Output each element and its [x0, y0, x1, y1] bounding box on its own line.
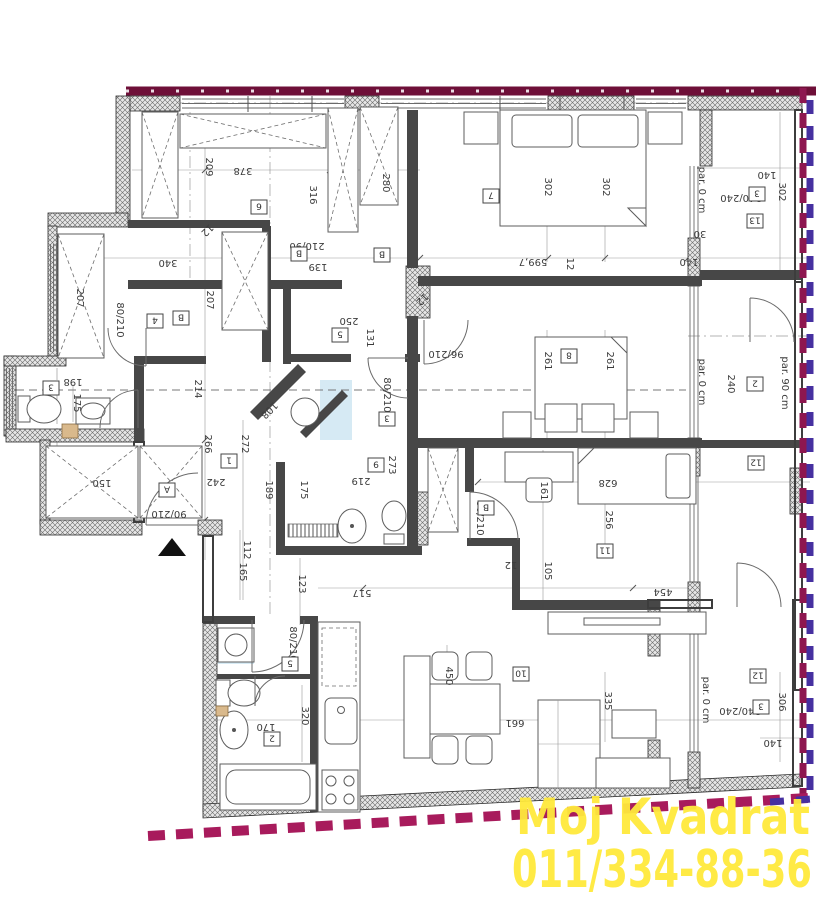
- dim-label: 189: [263, 480, 274, 499]
- room-number: 10: [515, 668, 527, 678]
- room-number-box: 2: [747, 377, 763, 391]
- dim-label: 123: [296, 574, 307, 593]
- dim-label: 207: [204, 290, 215, 309]
- room-number: 3: [48, 382, 54, 392]
- room-number-box: 3: [43, 381, 59, 395]
- room-number-box: 7: [483, 189, 499, 203]
- room-number-box: 10: [513, 667, 529, 681]
- dim-label: 175: [71, 393, 82, 412]
- dim-label: 161: [538, 481, 549, 500]
- room-number: 1: [226, 455, 232, 465]
- room-number: 5: [287, 658, 293, 668]
- dim-label: 302: [600, 177, 611, 196]
- dim-label: 112: [241, 540, 252, 559]
- room-number: 2: [269, 733, 275, 743]
- room-number: 2: [752, 378, 758, 388]
- dim-label: 302: [542, 177, 553, 196]
- dim-label: 628: [598, 477, 617, 488]
- floor-plan-page: { "title": "apartment-floor-plan", "wate…: [0, 0, 837, 900]
- room-number-box: 9: [368, 458, 384, 472]
- room-number: B: [178, 312, 184, 322]
- dim-label: 90/210: [151, 508, 186, 519]
- room-number: 8: [566, 350, 572, 360]
- room-number-box: 3: [379, 412, 395, 426]
- room-number: 6: [256, 201, 262, 211]
- dim-label: 170: [256, 721, 275, 732]
- dim-label: 302: [776, 182, 787, 201]
- dim-label: 219: [351, 475, 370, 486]
- dim-label: 280: [380, 173, 391, 192]
- room-number-box: B: [173, 311, 189, 325]
- dim-label: 316: [307, 185, 318, 204]
- room-number-box: 3: [749, 187, 765, 201]
- room-number: B: [296, 248, 302, 258]
- room-number-box: 6: [251, 200, 267, 214]
- dim-label: par. 0 cm: [696, 167, 707, 214]
- watermark: Moj Kvadrat 011/334-88-36: [512, 788, 812, 900]
- room-number: 3: [754, 188, 760, 198]
- dim-label: 131: [364, 328, 375, 347]
- room-number: 3: [384, 413, 390, 423]
- dim-label: 661: [505, 717, 524, 728]
- room-number-box: 13: [747, 214, 763, 228]
- dim-label: 140: [763, 737, 782, 748]
- dim-label: 198: [63, 376, 82, 387]
- dim-label: 175: [298, 480, 309, 499]
- room-number-box: A: [159, 483, 175, 497]
- dim-label: par. 0 cm: [696, 359, 707, 406]
- dim-label: 261: [604, 351, 615, 370]
- dim-label: 256: [603, 510, 614, 529]
- room-number: 12: [752, 670, 763, 680]
- dim-label: 306: [776, 692, 787, 711]
- room-number: A: [163, 484, 170, 494]
- dim-label: 80/210: [114, 302, 125, 337]
- dim-label: 140: [679, 256, 698, 267]
- watermark-line2: 011/334-88-36: [512, 840, 812, 900]
- dim-label: 209: [203, 157, 214, 176]
- room-number-box: 11: [597, 544, 613, 558]
- room-number-box: 8: [561, 349, 577, 363]
- room-number-box: B: [374, 248, 390, 262]
- dim-label: 266: [202, 434, 213, 453]
- dim-label: 454: [653, 586, 672, 597]
- dim-label: 240: [725, 374, 736, 393]
- dim-label: 272: [239, 434, 250, 453]
- dim-label: 378: [233, 165, 252, 176]
- dim-label: 80/210: [287, 626, 298, 661]
- watermark-line1: Moj Kvadrat: [516, 788, 810, 846]
- room-number-box: 2: [264, 732, 280, 746]
- dim-label: 96/210: [428, 348, 463, 359]
- dim-label: 250: [339, 315, 358, 326]
- room-number-box: 12: [748, 456, 764, 470]
- room-number: 5: [337, 329, 343, 339]
- entrance-triangle: [158, 538, 186, 556]
- dim-label: 340: [158, 257, 177, 268]
- dim-label: 450: [443, 666, 454, 685]
- dim-label: 80/210: [381, 377, 392, 412]
- dim-label: 335: [602, 691, 613, 710]
- room-number: 12: [750, 457, 761, 467]
- room-number-box: B: [291, 247, 307, 261]
- room-number: B: [379, 249, 385, 259]
- room-number-box: 12: [750, 669, 766, 683]
- dim-label: 261: [542, 351, 553, 370]
- room-number: 7: [488, 190, 494, 200]
- dim-label: 599,7: [519, 256, 548, 267]
- room-number: 9: [373, 459, 379, 469]
- dim-label: 242: [206, 476, 225, 487]
- room-number: 13: [749, 215, 760, 225]
- room-number-box: 5: [282, 657, 298, 671]
- dim-label: par. 90 cm: [779, 356, 790, 409]
- dim-label: 12: [505, 559, 518, 570]
- dim-label: 30: [694, 228, 707, 239]
- dim-label: 140: [757, 169, 776, 180]
- dim-label: 207: [74, 288, 85, 307]
- room-number: 3: [758, 701, 764, 711]
- dim-label: 517: [352, 587, 371, 598]
- room-number-box: B: [478, 501, 494, 515]
- room-number-box: 3: [753, 700, 769, 714]
- dim-label: 165: [237, 562, 248, 581]
- room-number-box: 4: [147, 314, 163, 328]
- dim-label: par. 0 cm: [700, 677, 711, 724]
- dim-label: 320: [299, 706, 310, 725]
- room-number: 4: [152, 315, 158, 325]
- room-number: B: [483, 502, 489, 512]
- floor-plan: 2093783162803023021403023014034020720725…: [0, 0, 837, 900]
- room-number-box: 5: [332, 328, 348, 342]
- dim-label: 273: [386, 455, 397, 474]
- room-number-box: 1: [221, 454, 237, 468]
- dim-label: 150: [92, 477, 111, 488]
- dim-label: 139: [308, 261, 327, 272]
- dim-label: 214: [192, 379, 203, 398]
- dim-label: 105: [542, 561, 553, 580]
- room-number: 11: [599, 545, 610, 555]
- dim-label: 12: [564, 258, 575, 271]
